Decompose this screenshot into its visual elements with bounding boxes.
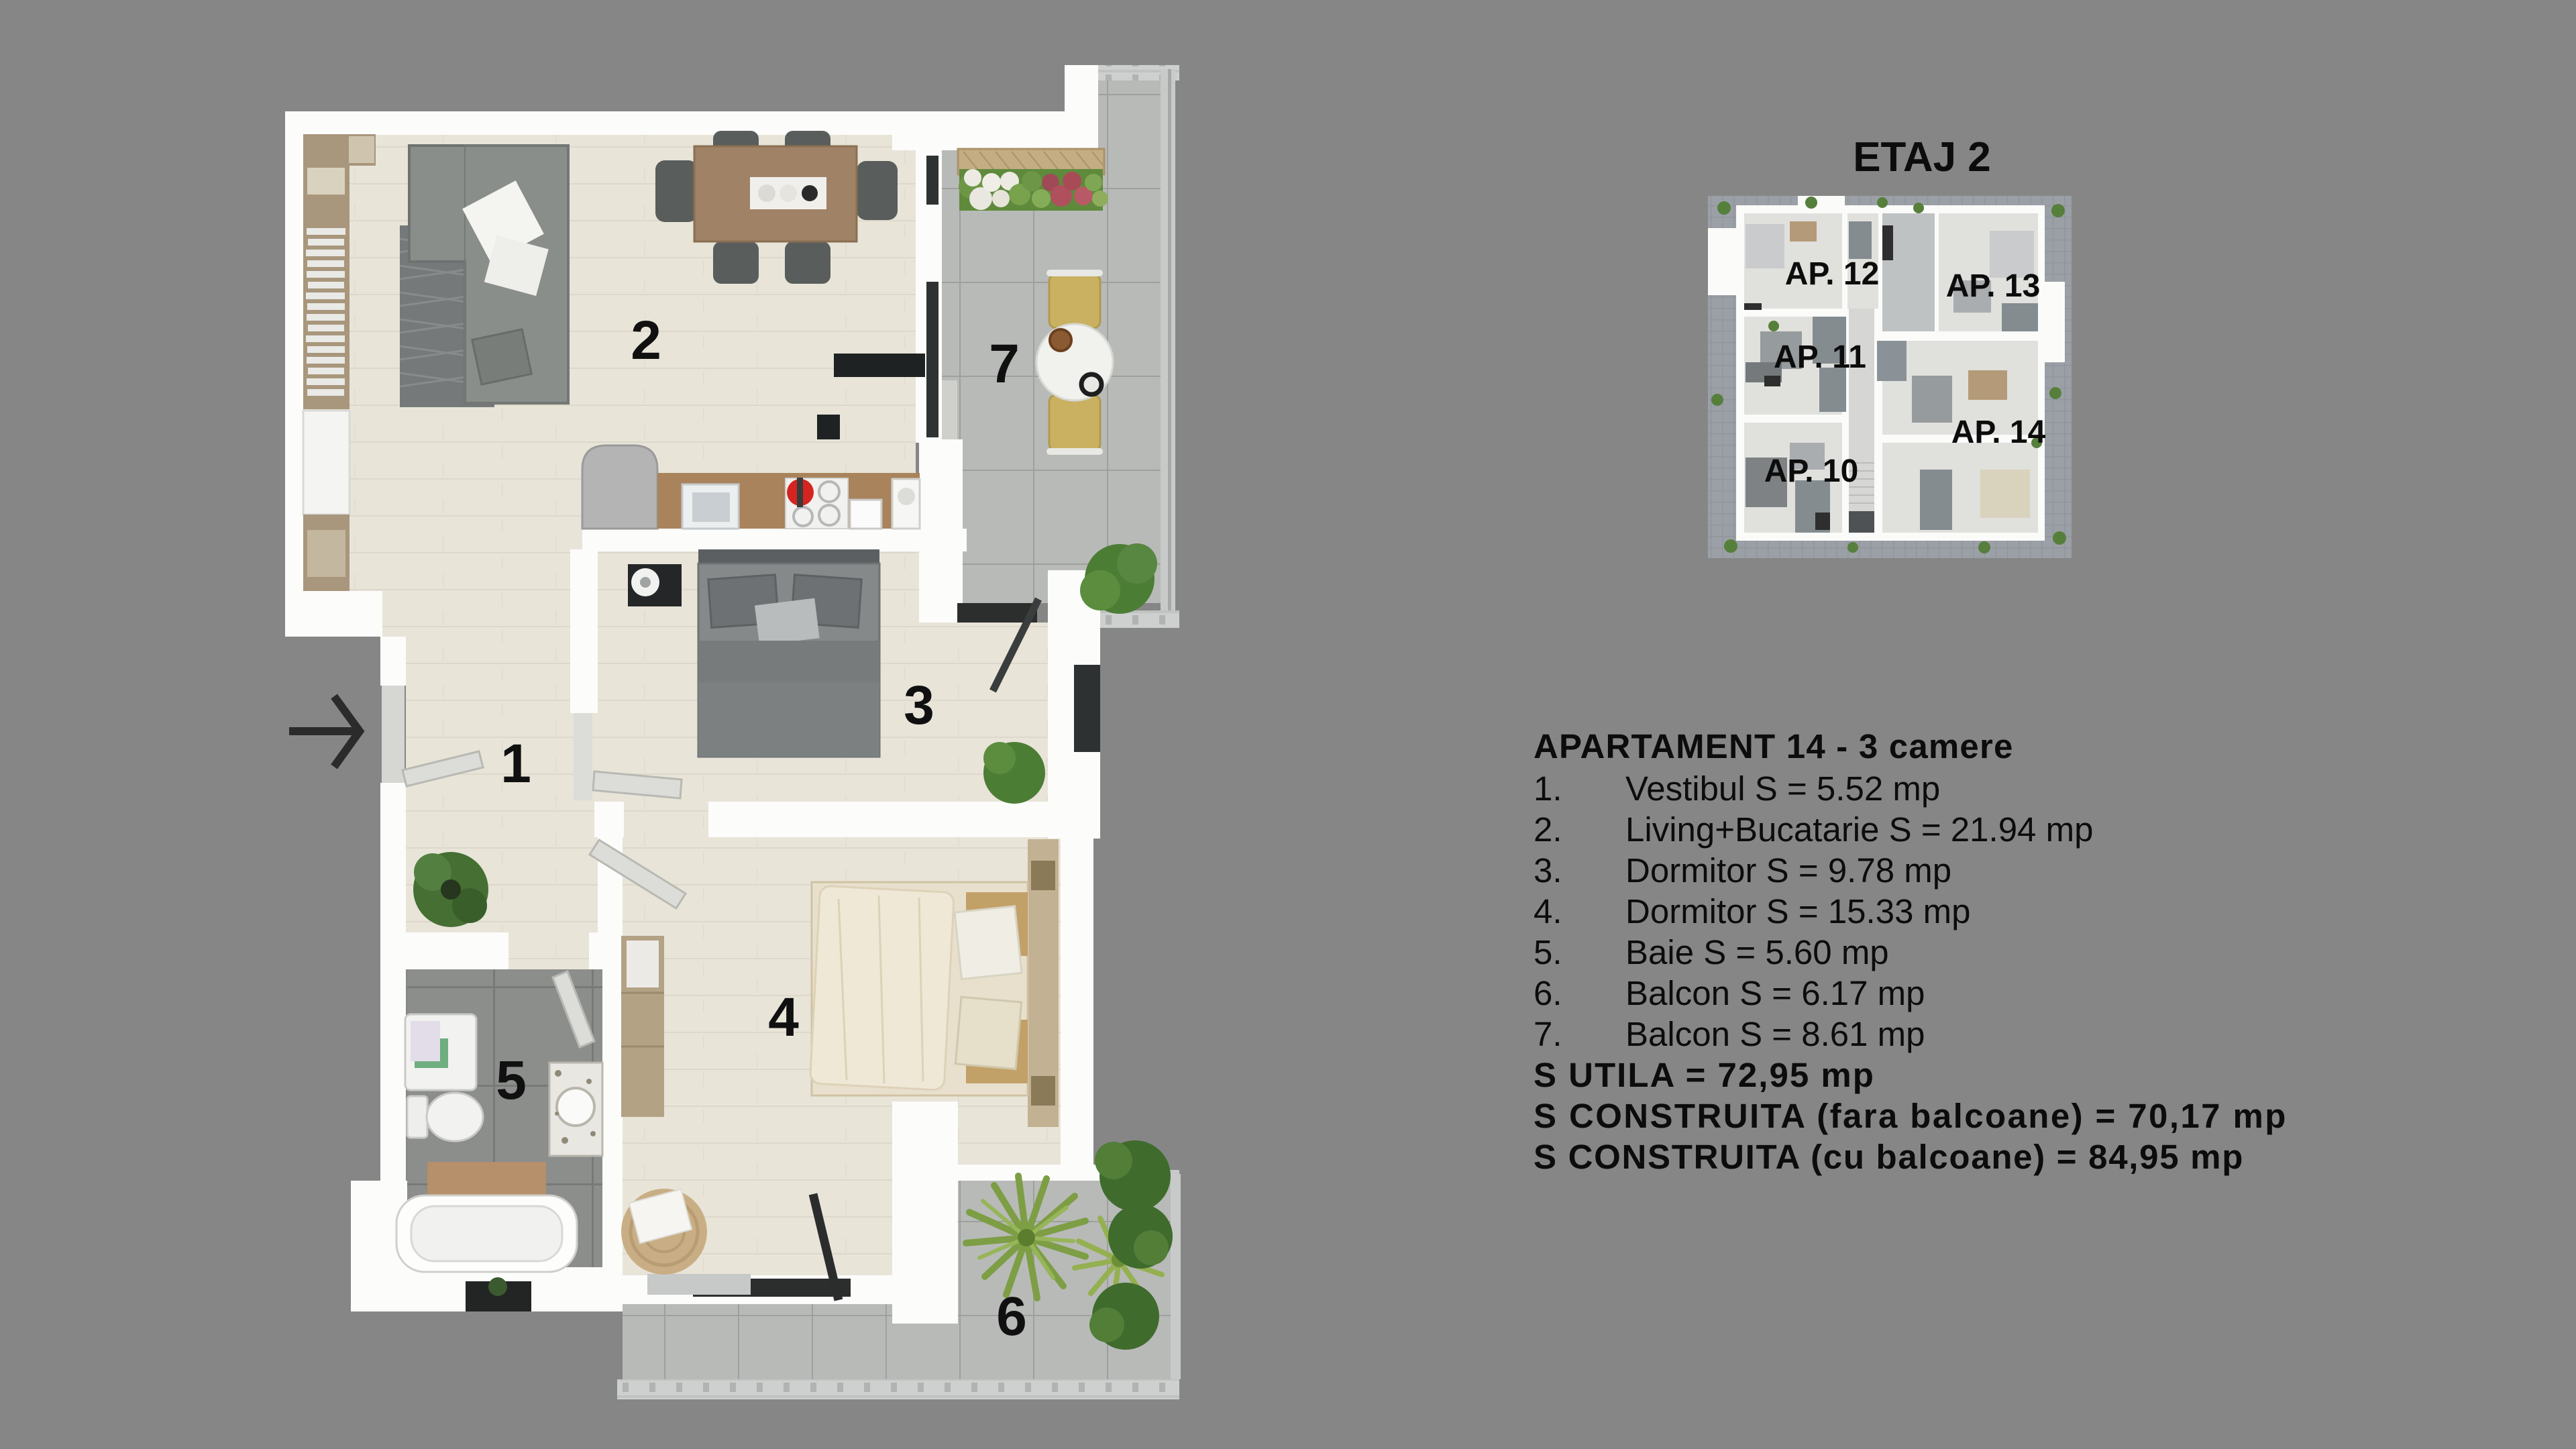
svg-text:S UTILA = 72,95 mp: S UTILA = 72,95 mp [1534,1056,1875,1094]
svg-text:APARTAMENT 14 - 3 camere: APARTAMENT 14 - 3 camere [1534,727,2014,765]
svg-text:S CONSTRUITA (cu balcoane) = 8: S CONSTRUITA (cu balcoane) = 84,95 mp [1534,1138,2244,1176]
svg-text:AP. 12: AP. 12 [1785,256,1880,292]
svg-text:Balcon S = 8.61 mp: Balcon S = 8.61 mp [1625,1015,1925,1053]
svg-text:Living+Bucatarie S = 21.94 mp: Living+Bucatarie S = 21.94 mp [1625,810,2093,849]
svg-text:AP. 11: AP. 11 [1774,339,1866,375]
svg-text:3: 3 [904,675,934,736]
svg-text:S CONSTRUITA (fara balcoane) =: S CONSTRUITA (fara balcoane) = 70,17 mp [1534,1097,2288,1135]
svg-text:7.: 7. [1534,1015,1562,1053]
svg-text:ETAJ 2: ETAJ 2 [1853,134,1991,180]
svg-text:7: 7 [989,333,1020,394]
svg-text:Dormitor S = 15.33 mp: Dormitor S = 15.33 mp [1625,892,1970,930]
svg-text:2: 2 [631,310,661,371]
svg-text:Vestibul S = 5.52 mp: Vestibul S = 5.52 mp [1625,769,1940,808]
svg-text:1: 1 [500,733,531,794]
svg-text:AP. 13: AP. 13 [1946,268,2041,304]
svg-text:3.: 3. [1534,851,1562,890]
svg-text:Baie S = 5.60 mp: Baie S = 5.60 mp [1625,933,1889,971]
svg-text:AP. 10: AP. 10 [1764,453,1859,489]
svg-text:4.: 4. [1534,892,1562,930]
svg-text:Dormitor S = 9.78 mp: Dormitor S = 9.78 mp [1625,851,1951,890]
svg-text:AP. 14: AP. 14 [1951,415,2046,450]
svg-text:5: 5 [496,1050,527,1111]
svg-text:5.: 5. [1534,933,1562,971]
svg-text:6: 6 [996,1286,1027,1347]
svg-text:Balcon S = 6.17 mp: Balcon S = 6.17 mp [1625,974,1925,1012]
svg-text:1.: 1. [1534,769,1562,808]
svg-text:2.: 2. [1534,810,1562,849]
svg-text:4: 4 [768,987,799,1048]
svg-text:6.: 6. [1534,974,1562,1012]
